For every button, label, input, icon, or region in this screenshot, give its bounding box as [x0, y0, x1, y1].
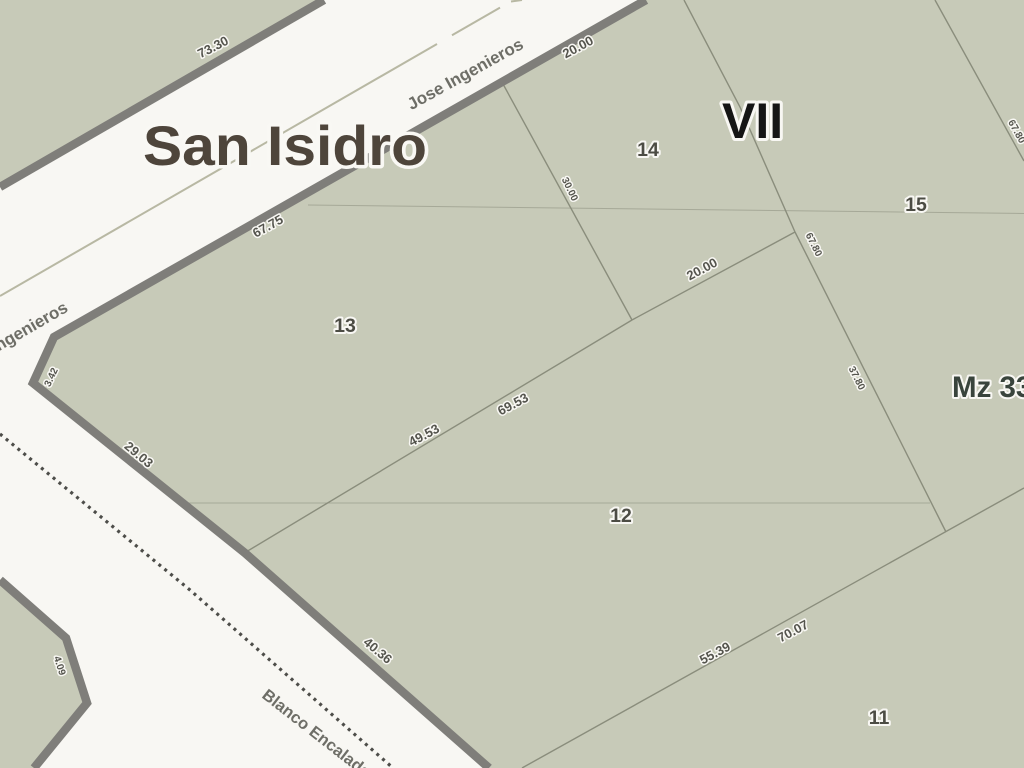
svg-text:15: 15 — [905, 194, 927, 216]
svg-text:Mz 33: Mz 33 — [952, 371, 1024, 404]
svg-text:14: 14 — [637, 139, 659, 161]
svg-text:13: 13 — [334, 315, 356, 337]
svg-text:11: 11 — [869, 707, 890, 729]
svg-text:12: 12 — [610, 505, 632, 527]
svg-text:San Isidro: San Isidro — [143, 114, 427, 177]
svg-text:VII: VII — [722, 93, 783, 149]
